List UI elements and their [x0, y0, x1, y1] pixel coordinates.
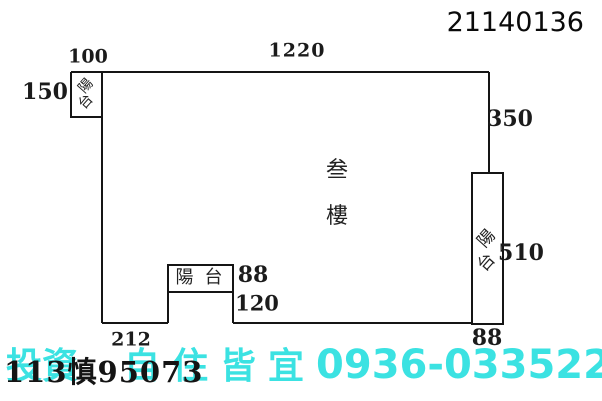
dim-balcony-left-height: 150 [22, 81, 68, 103]
watermark-text-2: 自住皆宜 [124, 349, 316, 385]
balcony-top-left-char-2: 台 [76, 92, 96, 112]
dim-right-upper-height: 350 [487, 108, 533, 130]
floor-plan-scan: 21140136 100 1220 150 350 510 88 88 120 … [0, 0, 602, 401]
balcony-right-char-1: 陽 [475, 227, 499, 251]
floor-label-char-2: 樓 [326, 206, 348, 228]
dim-top-width: 1220 [269, 42, 326, 61]
reference-number: 21140136 [447, 9, 584, 36]
realtor-watermark: 投資 自住皆宜 0936-033522 [6, 345, 602, 385]
balcony-middle-label: 陽台 [165, 269, 234, 287]
dim-balcony-top-width: 100 [68, 48, 108, 67]
dim-mid-balcony-width: 88 [238, 264, 269, 286]
balcony-right-char-2: 台 [475, 251, 499, 275]
floor-label-char-1: 叁 [326, 160, 348, 182]
floor-label: 叁 樓 [326, 160, 348, 228]
watermark-text-1: 投資 [6, 349, 78, 385]
balcony-top-left-label: 陽 台 [79, 79, 93, 109]
dim-right-balcony-height: 510 [498, 242, 544, 264]
dim-mid-balcony-depth: 120 [235, 293, 279, 314]
watermark-phone: 0936-033522 [316, 345, 602, 385]
balcony-right-label: 陽 台 [479, 231, 496, 272]
